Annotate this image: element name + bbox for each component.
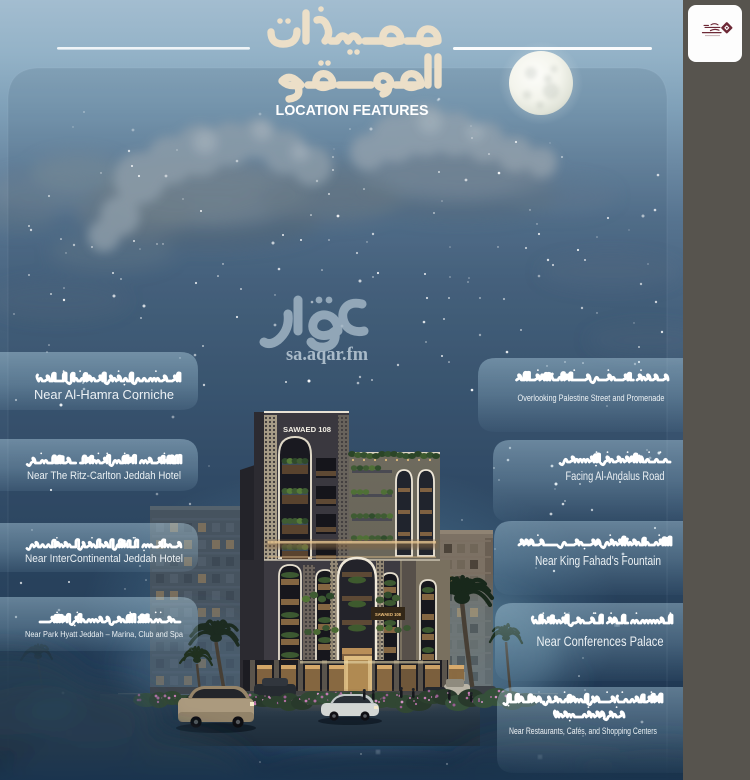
svg-text:Near King Fahad's Fountain: Near King Fahad's Fountain <box>535 553 661 568</box>
svg-text:Near Restaurants, Cafés, and S: Near Restaurants, Cafés, and Shopping Ce… <box>509 726 657 736</box>
svg-text:Near Conferences Palace: Near Conferences Palace <box>537 634 664 649</box>
svg-text:sa.aqar.fm: sa.aqar.fm <box>286 344 368 365</box>
svg-text:Near InterContinental Jeddah H: Near InterContinental Jeddah Hotel <box>25 553 183 565</box>
svg-text:Near Park Hyatt Jeddah – Marin: Near Park Hyatt Jeddah – Marina, Club an… <box>25 629 183 639</box>
svg-text:Near Al-Hamra Corniche: Near Al-Hamra Corniche <box>34 387 174 402</box>
svg-text:SAWAED 108: SAWAED 108 <box>283 425 331 434</box>
svg-text:SAWAED 108: SAWAED 108 <box>375 612 402 617</box>
svg-text:Near The Ritz-Carlton Jeddah H: Near The Ritz-Carlton Jeddah Hotel <box>27 470 181 482</box>
svg-text:LOCATION FEATURES: LOCATION FEATURES <box>276 102 429 119</box>
svg-text:Overlooking Palestine Street a: Overlooking Palestine Street and Promena… <box>518 393 665 403</box>
svg-text:Facing Al-Andalus Road: Facing Al-Andalus Road <box>566 469 665 483</box>
